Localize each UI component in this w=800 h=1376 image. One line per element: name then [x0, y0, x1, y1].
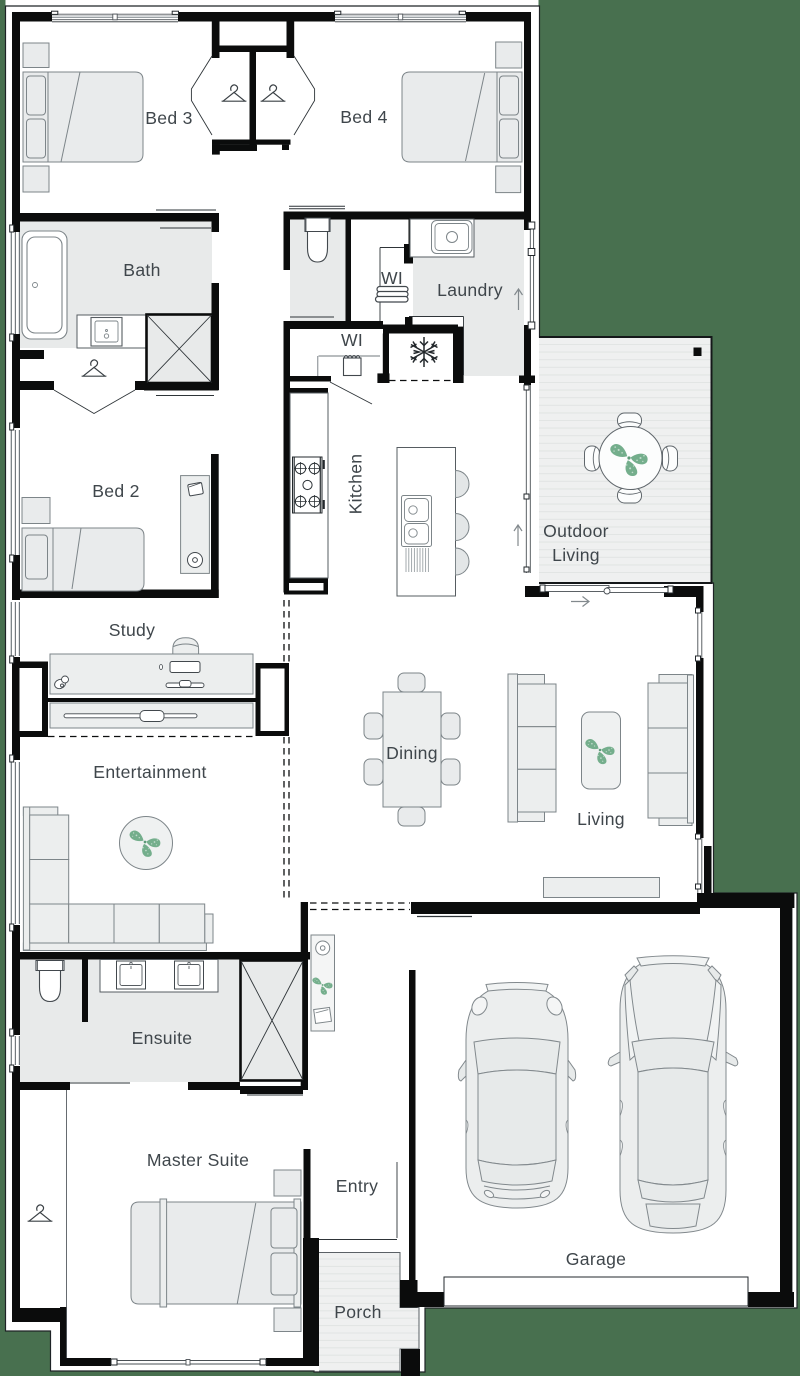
svg-text:Laundry: Laundry — [437, 280, 503, 300]
svg-text:Garage: Garage — [566, 1249, 626, 1269]
svg-text:Kitchen: Kitchen — [346, 454, 366, 515]
svg-text:WI: WI — [341, 330, 363, 350]
svg-text:Bed 3: Bed 3 — [145, 108, 192, 128]
svg-text:Ensuite: Ensuite — [132, 1028, 193, 1048]
svg-text:Porch: Porch — [334, 1302, 381, 1322]
svg-text:Bed 2: Bed 2 — [92, 481, 139, 501]
svg-text:Dining: Dining — [386, 743, 438, 763]
svg-text:Entertainment: Entertainment — [93, 762, 206, 782]
svg-text:Study: Study — [109, 620, 156, 640]
svg-text:Bath: Bath — [123, 260, 160, 280]
svg-text:Living: Living — [552, 545, 600, 565]
svg-text:Entry: Entry — [336, 1176, 379, 1196]
svg-text:Living: Living — [577, 809, 625, 829]
svg-text:Master Suite: Master Suite — [147, 1150, 249, 1170]
svg-text:WI: WI — [381, 268, 403, 288]
svg-text:Bed 4: Bed 4 — [340, 107, 387, 127]
svg-text:Outdoor: Outdoor — [543, 521, 609, 541]
